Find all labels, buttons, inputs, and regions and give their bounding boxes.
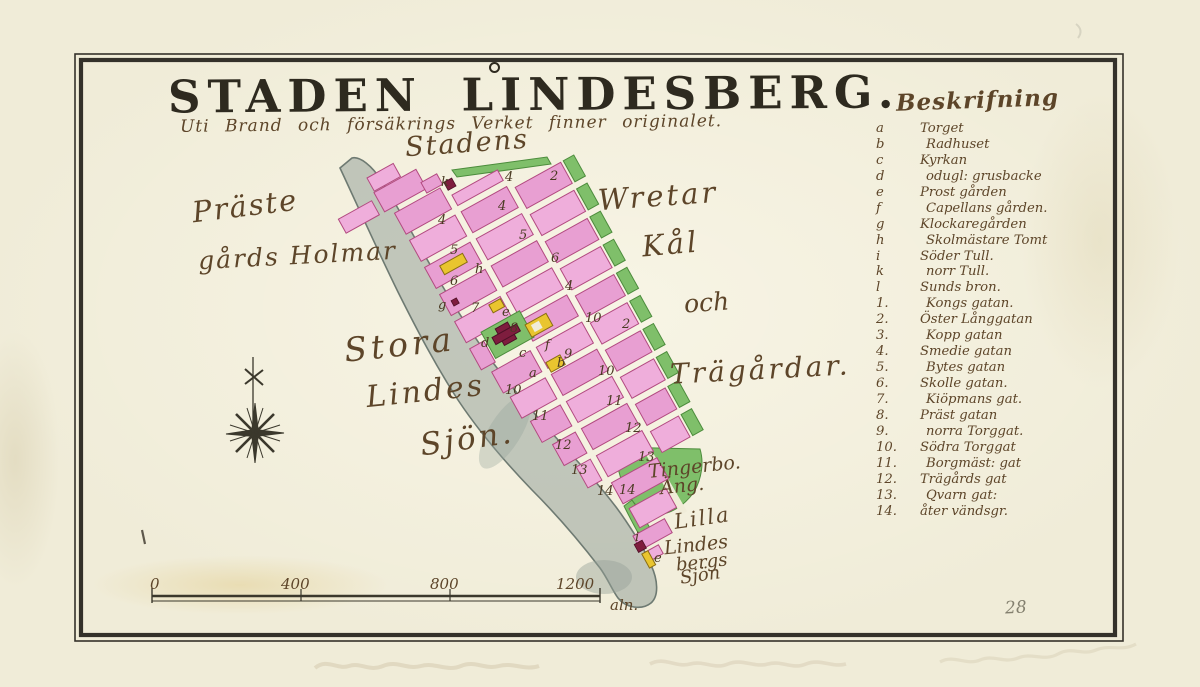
block-label: e [502, 305, 510, 320]
block-label: 14 [619, 483, 636, 498]
block-label: 8 [510, 321, 518, 336]
block-label: 13 [571, 463, 588, 478]
legend-row: lSunds bron. [872, 280, 1112, 296]
legend-row: 10.Södra Torggat [872, 440, 1112, 456]
legend-key: 14. [872, 504, 916, 519]
block-label: 5 [450, 243, 458, 258]
legend-label: Sunds bron. [916, 280, 1001, 295]
scale-tick-label: 1200 [556, 575, 595, 593]
legend-label: Södra Torggat [916, 440, 1016, 455]
block-label: 4 [497, 199, 506, 214]
label-ang: Äng. [659, 475, 705, 499]
block-label: i [635, 530, 639, 545]
legend-row: 2.Öster Långgatan [872, 312, 1112, 328]
legend-label: Präst gatan [916, 408, 997, 423]
legend-label: Smedie gatan [916, 344, 1012, 359]
block-label: 6 [551, 251, 559, 266]
legend-row: 3.Kopp gatan [872, 328, 1112, 344]
block-label: 4 [504, 170, 513, 185]
legend-row: fCapellans gården. [872, 201, 1112, 217]
legend-row: cKyrkan [872, 153, 1112, 169]
block-label: 6 [450, 274, 458, 289]
legend-label: norr Tull. [916, 264, 989, 279]
legend-key: e [872, 185, 916, 200]
legend-row: 12.Trägårds gat [872, 472, 1112, 488]
legend-row: bRadhuset [872, 137, 1112, 153]
block-label: e [654, 551, 662, 566]
block-label: 11 [532, 409, 549, 424]
block-label: d [481, 336, 489, 351]
block-label: 7 [471, 301, 480, 316]
block-label: 12 [555, 438, 572, 453]
block-label: 4 [564, 279, 573, 294]
scale-bar: 0 400 800 1200 aln. [150, 575, 638, 614]
block-label: 2 [621, 317, 630, 332]
legend-row: 7.Kiöpmans gat. [872, 392, 1112, 408]
block-label: k [441, 175, 449, 190]
legend-key: 9. [872, 424, 916, 439]
scale-tick-label: 800 [430, 575, 459, 593]
legend-row: aTorget [872, 121, 1112, 137]
block-label: g [438, 298, 446, 313]
legend-label: Prost gården [916, 185, 1007, 200]
block-label: 4 [437, 213, 446, 228]
block-label: 10 [598, 364, 615, 379]
corner-pencil-mark [1076, 24, 1081, 38]
legend-label: Trägårds gat [916, 472, 1007, 487]
bleedthrough-squiggle [940, 644, 1136, 662]
block-label: 11 [606, 394, 623, 409]
legend-row: hSkolmästare Tomt [872, 233, 1112, 249]
legend-row: 9.norra Torggat. [872, 424, 1112, 440]
legend-label: Kongs gatan. [916, 296, 1013, 311]
bleedthrough-squiggle [650, 661, 846, 666]
legend-label: Bytes gatan [916, 360, 1005, 375]
legend-row: iSöder Tull. [872, 249, 1112, 265]
legend-label: Söder Tull. [916, 249, 994, 264]
legend-row: 5.Bytes gatan [872, 360, 1112, 376]
block-label: 5 [519, 228, 527, 243]
legend-row: 6.Skolle gatan. [872, 376, 1112, 392]
block-label: 10 [505, 383, 522, 398]
legend-row: gKlockaregården [872, 217, 1112, 233]
legend-key: l [872, 280, 916, 295]
legend-key: f [872, 201, 916, 216]
legend-row: 13.Qvarn gat: [872, 488, 1112, 504]
legend-label: åter vändsgr. [916, 504, 1008, 519]
ring-diacritic [489, 62, 500, 73]
legend-label: Öster Långgatan [916, 312, 1033, 327]
scale-tick-label: 0 [150, 575, 160, 593]
legend-label: Radhuset [916, 137, 989, 152]
town-block [635, 388, 676, 425]
scale-tick-label: 400 [280, 575, 310, 593]
label-wretar: Wretar [597, 178, 719, 215]
legend-key: 5. [872, 360, 916, 375]
legend-panel: Beskrifning aTorget bRadhuset cKyrkan do… [872, 86, 1112, 519]
legend-row: dodugl: grusbacke [872, 169, 1112, 185]
legend-label: Torget [916, 121, 964, 136]
legend-row: knorr Tull. [872, 264, 1112, 280]
legend-heading: Beskrifning [896, 82, 1113, 117]
legend-key: g [872, 217, 916, 232]
legend-label: Capellans gården. [916, 201, 1048, 216]
north-green-edge [452, 157, 551, 177]
block-label: b [557, 356, 565, 371]
legend-key: 8. [872, 408, 916, 423]
legend-row: 1.Kongs gatan. [872, 296, 1112, 312]
legend-label: odugl: grusbacke [916, 169, 1042, 184]
legend-key: 2. [872, 312, 916, 327]
legend-key: c [872, 153, 916, 168]
legend-label: Kopp gatan [916, 328, 1002, 343]
legend-key: 3. [872, 328, 916, 343]
legend-key: 7. [872, 392, 916, 407]
legend-row: 14.åter vändsgr. [872, 504, 1112, 520]
legend-label: Qvarn gat: [916, 488, 997, 503]
legend-label: Kiöpmans gat. [916, 392, 1022, 407]
legend-key: a [872, 121, 916, 136]
legend-label: Skolle gatan. [916, 376, 1008, 391]
legend-row: eProst gården [872, 185, 1112, 201]
page-number: 28 [1004, 597, 1027, 618]
legend-key: 10. [872, 440, 916, 455]
legend-row: 4.Smedie gatan [872, 344, 1112, 360]
block-label: 10 [585, 311, 602, 326]
block-label: 2 [549, 169, 558, 184]
legend-key: d [872, 169, 916, 184]
legend-row: 8.Präst gatan [872, 408, 1112, 424]
legend-key: k [872, 264, 916, 279]
legend-key: b [872, 137, 916, 152]
legend-key: 4. [872, 344, 916, 359]
legend-label: Klockaregården [916, 217, 1027, 232]
legend-key: i [872, 249, 916, 264]
block-label: 14 [597, 484, 614, 499]
compass-rose [226, 357, 284, 463]
bleedthrough-squiggle [315, 664, 539, 668]
block-label: h [475, 262, 483, 277]
block-label: a [529, 366, 537, 381]
block-label: c [519, 346, 527, 361]
legend-label: norra Torggat. [916, 424, 1023, 439]
ink-mark [142, 530, 145, 544]
label-kal: Kål [641, 228, 701, 262]
legend-key: 6. [872, 376, 916, 391]
town-block [650, 416, 690, 453]
legend-label: Kyrkan [916, 153, 967, 168]
scale-unit-label: aln. [610, 596, 638, 614]
legend-key: 1. [872, 296, 916, 311]
legend-key: h [872, 233, 916, 248]
block-label: 12 [625, 421, 642, 436]
map-scan-page: 0 400 800 1200 aln. k 4 2 4 4 5 5 6 h 6 … [0, 0, 1200, 687]
legend-key: 12. [872, 472, 916, 487]
label-och: och [683, 288, 730, 316]
legend-key: 13. [872, 488, 916, 503]
legend-key: 11. [872, 456, 916, 471]
label-stadens: Stadens [404, 126, 530, 162]
legend-label: Skolmästare Tomt [916, 233, 1047, 248]
legend-label: Borgmäst: gat [916, 456, 1021, 471]
legend-row: 11.Borgmäst: gat [872, 456, 1112, 472]
